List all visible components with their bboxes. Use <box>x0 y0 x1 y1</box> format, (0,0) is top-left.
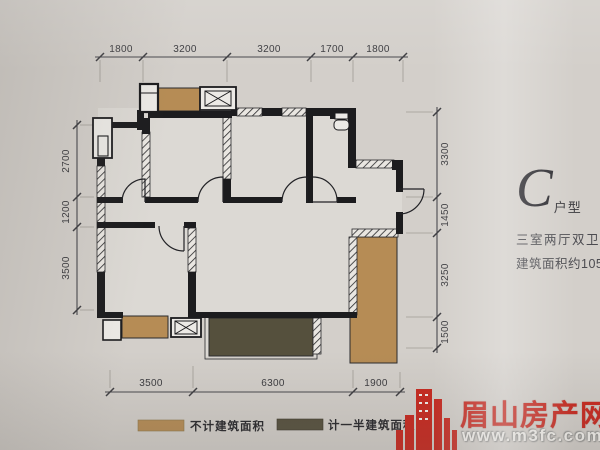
dim-label: 1800 <box>366 44 390 55</box>
dim-label: 6300 <box>261 378 285 389</box>
dim-label: 2700 <box>61 149 72 173</box>
shaft-icon-top <box>200 87 236 110</box>
dim-label: 3500 <box>139 378 163 389</box>
storage-box-bottom-left <box>103 320 121 340</box>
legend: 不计建筑面积 计一半建筑面积 <box>138 418 416 433</box>
dimension-labels-left: 2700 1200 3500 <box>61 149 72 280</box>
shaft-icon-bottom <box>171 318 201 337</box>
unit-layout: 三室两厅双卫 <box>516 229 600 248</box>
dimension-labels-right: 3300 1450 3250 1500 <box>440 142 451 344</box>
legend-label-not-counted: 不计建筑面积 <box>190 419 265 433</box>
toilet-icon <box>334 113 349 130</box>
dimension-labels-top: 1800 3200 3200 1700 1800 <box>109 44 390 55</box>
dim-label: 3500 <box>61 256 72 280</box>
dim-label: 1700 <box>320 44 344 55</box>
wall-box-top-left <box>140 84 158 112</box>
legend-swatch-not-counted <box>138 420 184 431</box>
half-counted-area <box>209 318 313 356</box>
entry-door-arc <box>399 189 424 214</box>
dimension-labels-bottom: 3500 6300 1900 <box>139 378 388 389</box>
floorplan-photo: 1800 3200 3200 1700 1800 2700 1200 3500 … <box>0 0 600 450</box>
dim-label: 1900 <box>364 378 388 389</box>
unit-area: 建筑面积约105m² <box>516 253 600 272</box>
watermark: 眉山房产网 www.m3fc.com <box>394 384 600 450</box>
legend-swatch-half-counted <box>277 419 323 430</box>
dim-label: 3300 <box>440 142 451 166</box>
dim-label: 3200 <box>257 44 281 55</box>
unit-letter-suffix: 户型 <box>554 197 582 216</box>
dim-label: 1800 <box>109 44 133 55</box>
dim-label: 3200 <box>173 44 197 55</box>
balcony-bottom-left <box>122 316 168 338</box>
dim-label: 3250 <box>440 263 451 287</box>
watermark-site-url: www.m3fc.com <box>462 426 600 446</box>
dim-label: 1450 <box>440 203 451 227</box>
dim-label: 1200 <box>61 200 72 224</box>
unit-letter: C <box>516 160 553 215</box>
floor-plan-drawing: 1800 3200 3200 1700 1800 2700 1200 3500 … <box>0 0 600 450</box>
buildings-logo-icon <box>394 384 460 450</box>
dim-label: 1500 <box>440 320 451 344</box>
unit-info: C户型 三室两厅双卫 建筑面积约105m² <box>516 160 600 272</box>
bay-window <box>93 118 112 158</box>
balcony-top <box>158 88 200 111</box>
